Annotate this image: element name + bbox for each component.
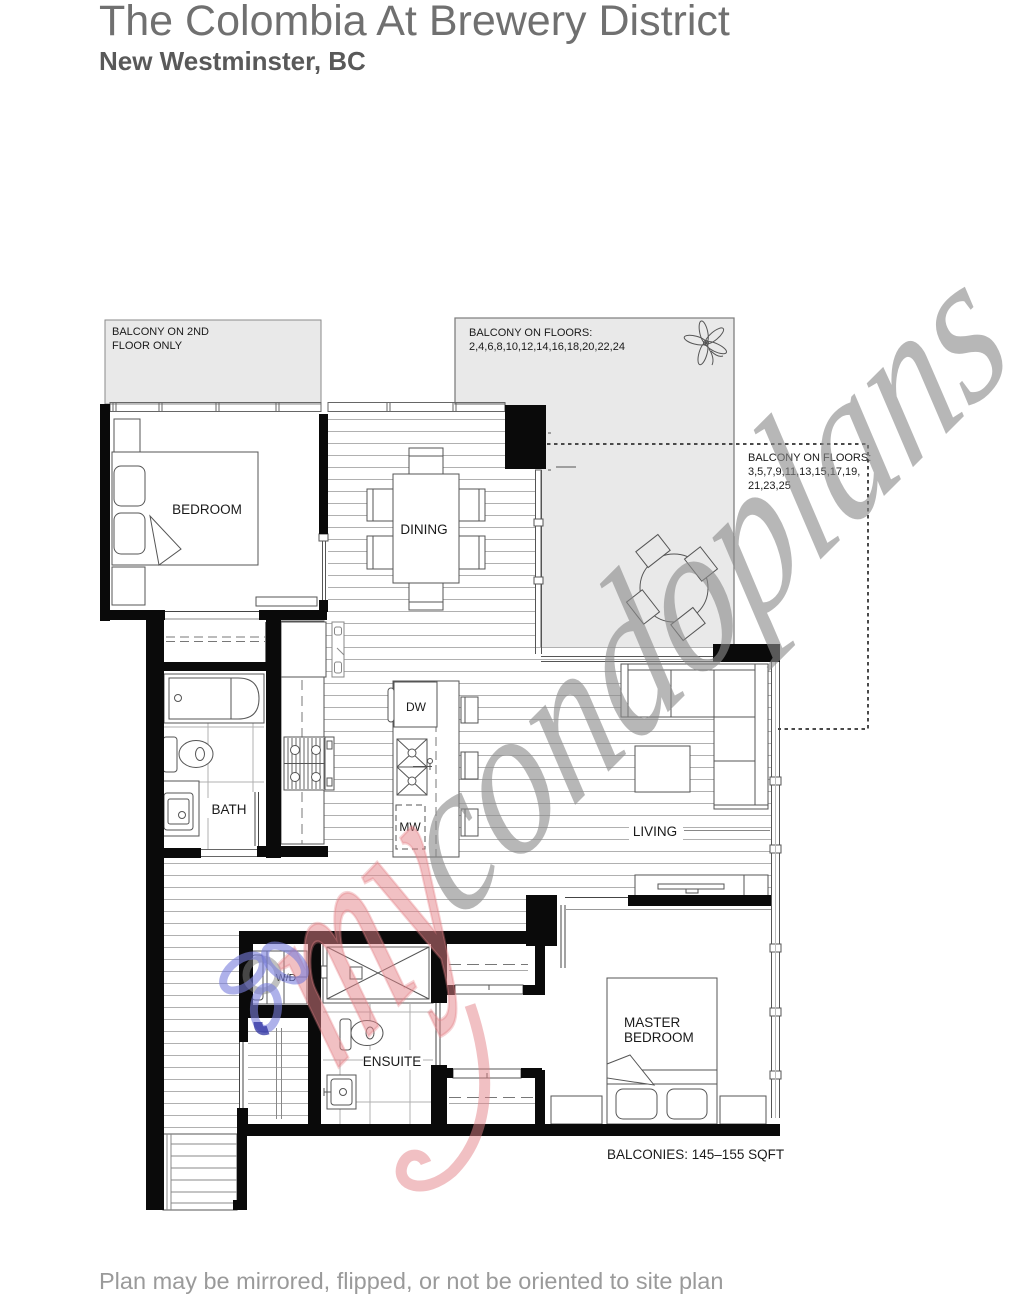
svg-text:BATH: BATH [211, 802, 246, 817]
svg-text:FLOOR ONLY: FLOOR ONLY [112, 340, 183, 352]
svg-text:MASTER: MASTER [624, 1015, 681, 1030]
svg-text:2,4,6,8,10,12,14,16,18,20,22,2: 2,4,6,8,10,12,14,16,18,20,22,24 [469, 341, 625, 353]
svg-text:BALCONY ON FLOORS:: BALCONY ON FLOORS: [469, 327, 592, 339]
svg-text:BEDROOM: BEDROOM [624, 1030, 694, 1045]
svg-text:DINING: DINING [400, 522, 447, 537]
svg-text:LIVING: LIVING [633, 824, 677, 839]
svg-text:BEDROOM: BEDROOM [172, 502, 242, 517]
svg-text:BALCONIES: 145–155 SQFT: BALCONIES: 145–155 SQFT [607, 1147, 784, 1162]
svg-text:BALCONY ON 2ND: BALCONY ON 2ND [112, 326, 209, 338]
